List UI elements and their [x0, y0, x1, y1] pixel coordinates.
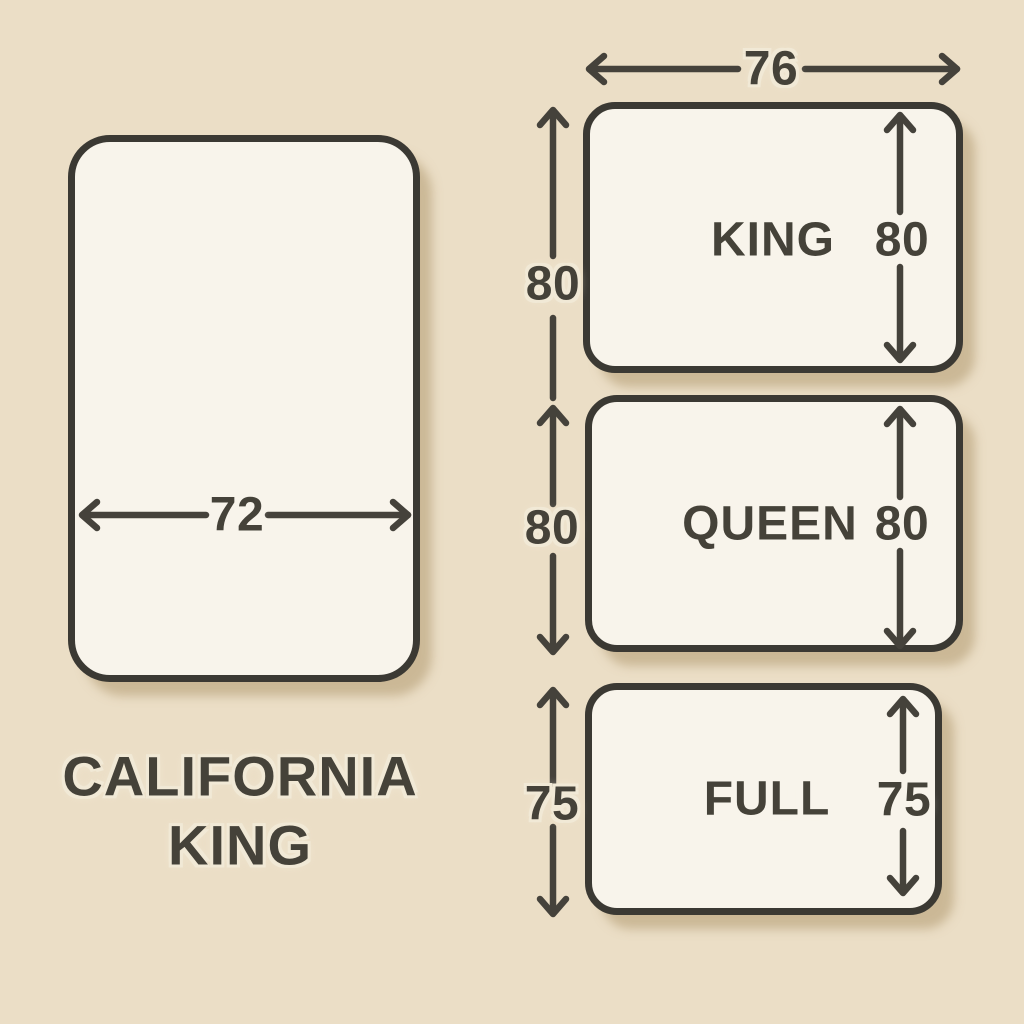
california-king-name-line1: CALIFORNIA [62, 744, 417, 809]
california-king-width-label: 72 [210, 488, 264, 543]
queen-inside-height-label: 80 [875, 497, 929, 552]
king-left-height-label: 80 [526, 257, 580, 312]
full-inside-height-label: 75 [877, 773, 931, 828]
king-inside-height-label: 80 [875, 213, 929, 268]
king-name: KING [711, 213, 835, 268]
california-king-mattress [68, 135, 420, 682]
king-left-height-arrow [531, 104, 575, 402]
queen-name: QUEEN [682, 497, 858, 552]
full-left-height-label: 75 [525, 777, 579, 832]
king-width-label: 76 [744, 42, 798, 97]
full-name: FULL [704, 772, 831, 827]
california-king-name-line2: KING [168, 813, 312, 878]
mattress-size-diagram: 72 CALIFORNIA KING 76 80 KING 80 80 QUEE… [0, 0, 1024, 1024]
queen-left-height-label: 80 [525, 501, 579, 556]
